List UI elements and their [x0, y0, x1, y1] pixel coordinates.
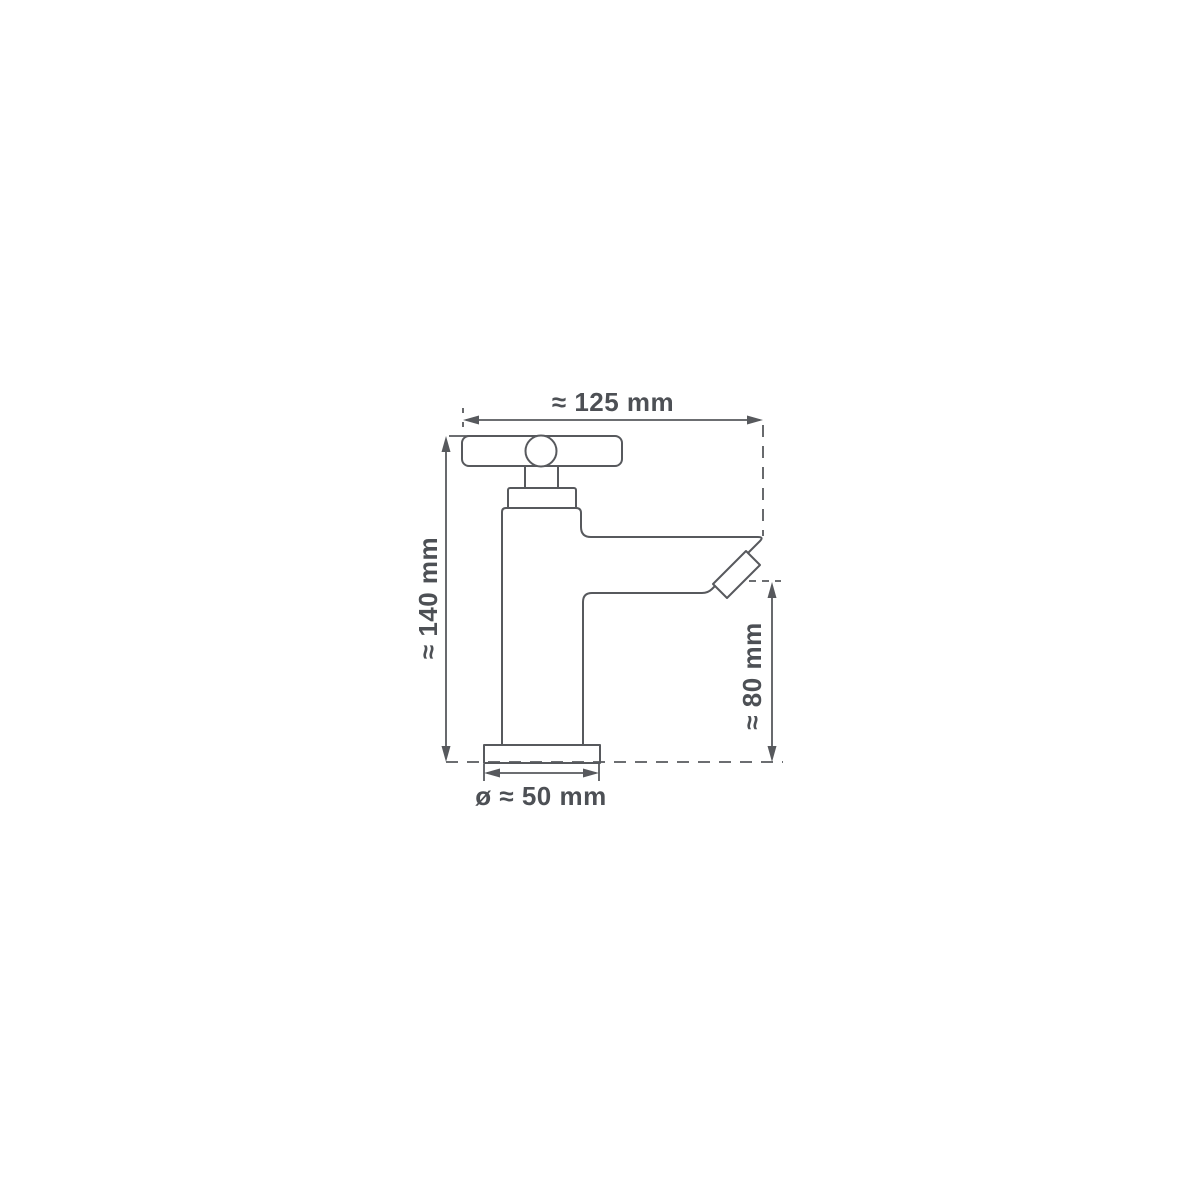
arrow-up-icon [442, 436, 451, 452]
base-flange [484, 745, 600, 763]
faucet-body-and-spout [502, 508, 762, 752]
arrow-down-icon [442, 746, 451, 762]
arrow-down-icon [768, 746, 777, 762]
arrow-right-icon [747, 416, 763, 425]
dimension-base-diameter: ø ≈ 50 mm [475, 764, 606, 811]
arrow-left-icon [484, 769, 500, 778]
height-dimension-label: ≈ 140 mm [413, 537, 443, 659]
arrow-left-icon [463, 416, 479, 425]
technical-drawing-page: ≈ 125 mm ≈ 140 mm ≈ 80 mm ø ≈ 50 mm [0, 0, 1200, 1200]
dimension-height: ≈ 140 mm [413, 436, 487, 762]
handle-collar [508, 488, 576, 509]
faucet-dimension-diagram: ≈ 125 mm ≈ 140 mm ≈ 80 mm ø ≈ 50 mm [0, 0, 1200, 1200]
dimension-spout-height: ≈ 80 mm [737, 581, 781, 762]
arrow-right-icon [583, 769, 599, 778]
handle-stem [525, 466, 558, 490]
arrow-up-icon [768, 582, 777, 598]
faucet-drawing [462, 436, 762, 764]
spout-height-dimension-label: ≈ 80 mm [737, 622, 767, 729]
base-diameter-dimension-label: ø ≈ 50 mm [475, 781, 606, 811]
handle-hub-ball [526, 436, 557, 467]
width-dimension-label: ≈ 125 mm [552, 387, 674, 417]
